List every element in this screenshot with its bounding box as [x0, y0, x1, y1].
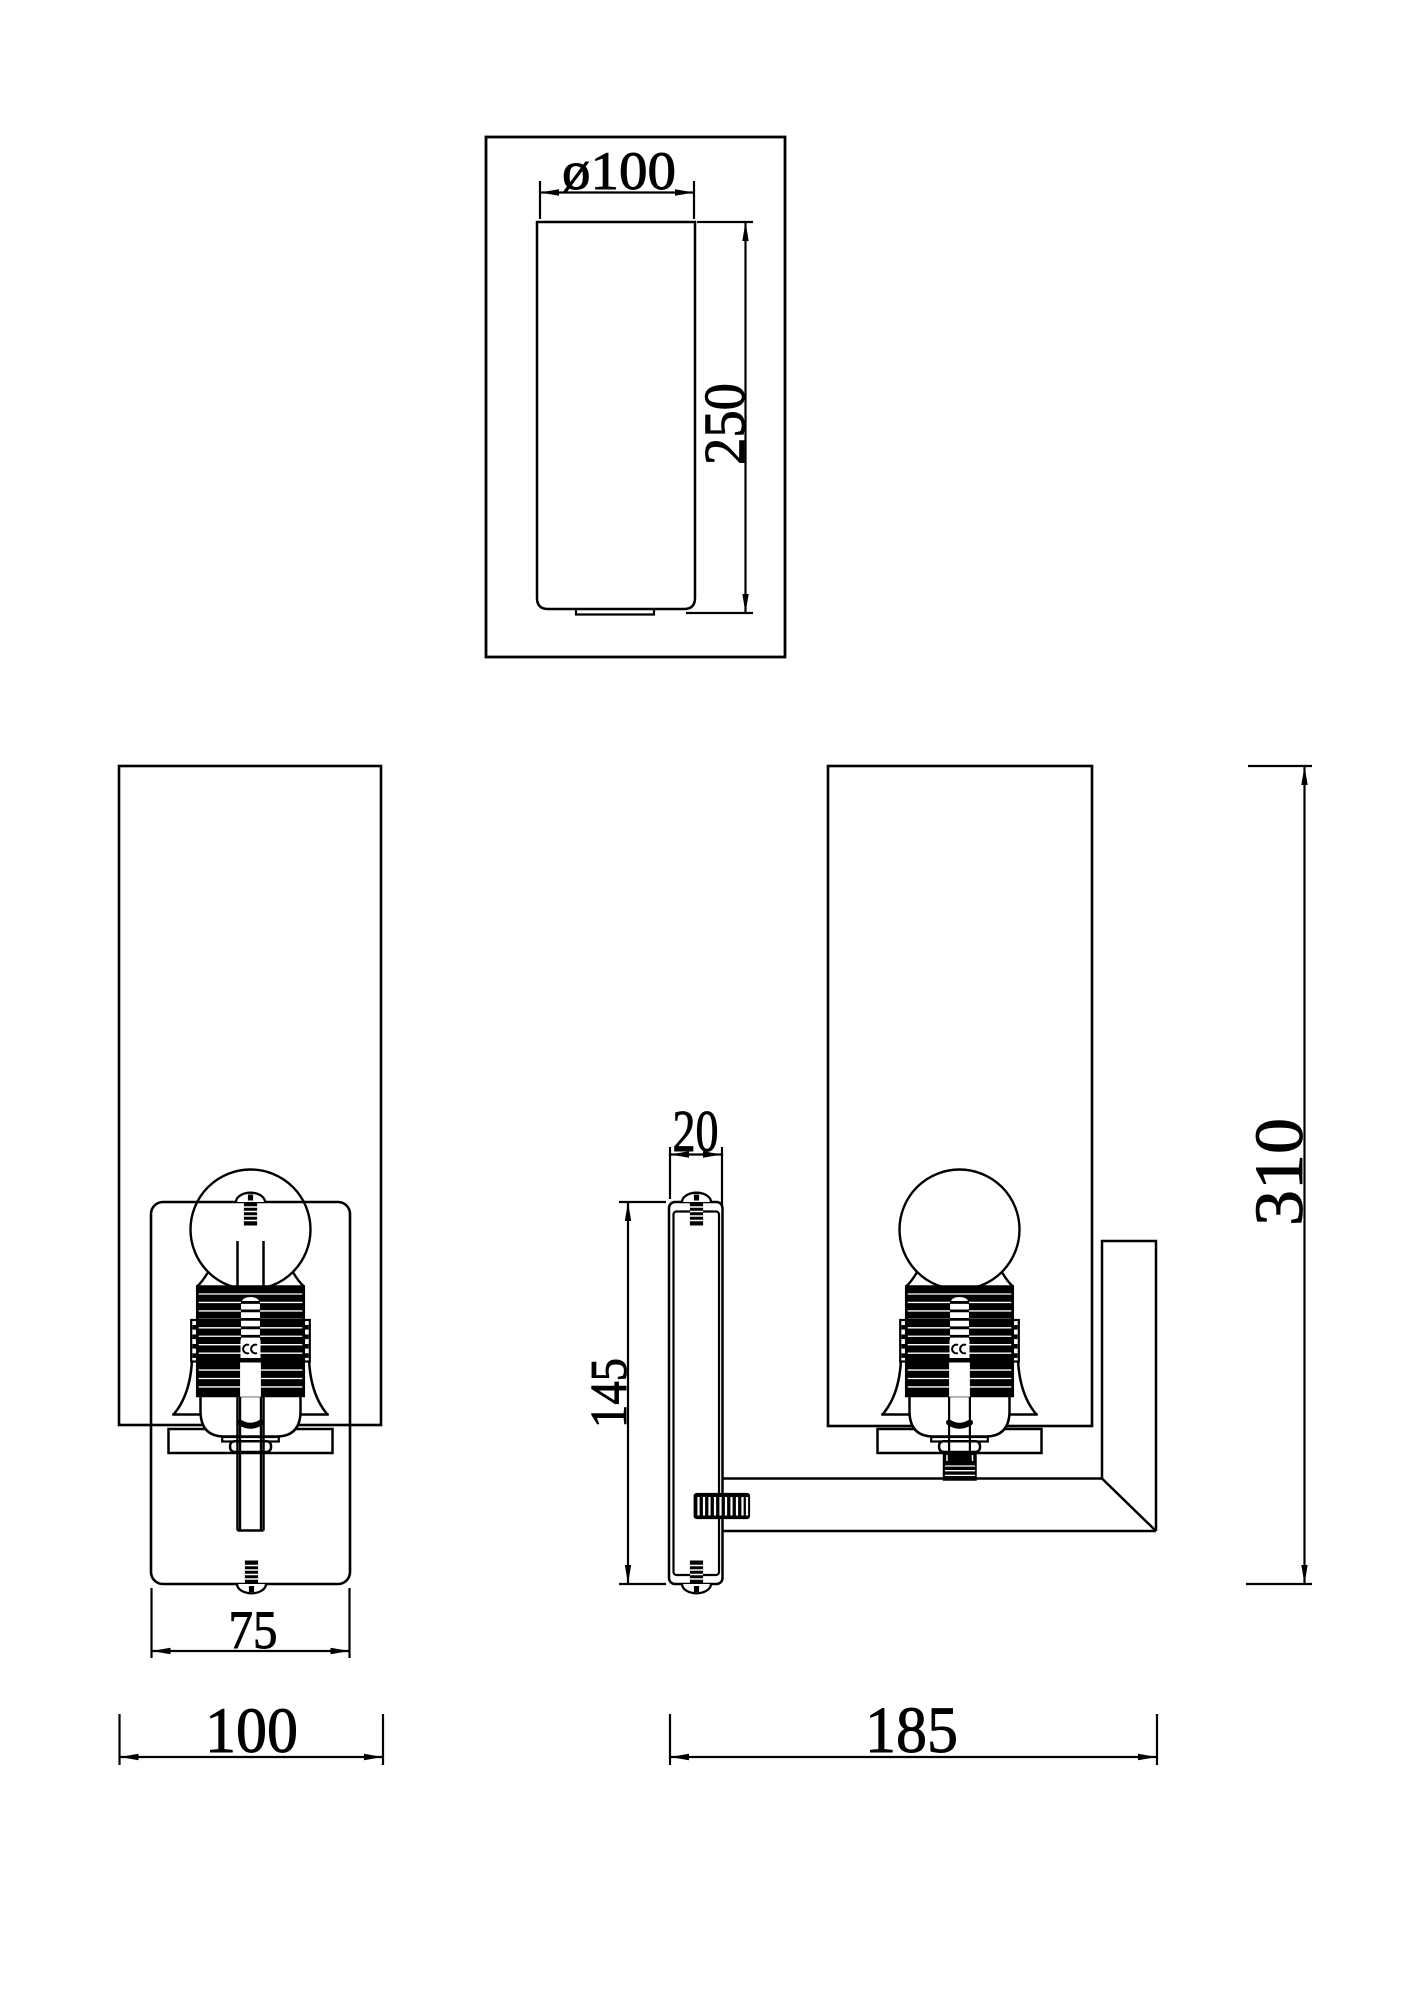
svg-text:75: 75	[229, 1600, 278, 1660]
svg-text:100: 100	[205, 1695, 298, 1767]
svg-text:310: 310	[1241, 1118, 1317, 1226]
svg-text:145: 145	[581, 1358, 638, 1428]
svg-text:20: 20	[673, 1098, 719, 1164]
svg-text:250: 250	[692, 383, 757, 465]
svg-text:185: 185	[865, 1694, 958, 1767]
